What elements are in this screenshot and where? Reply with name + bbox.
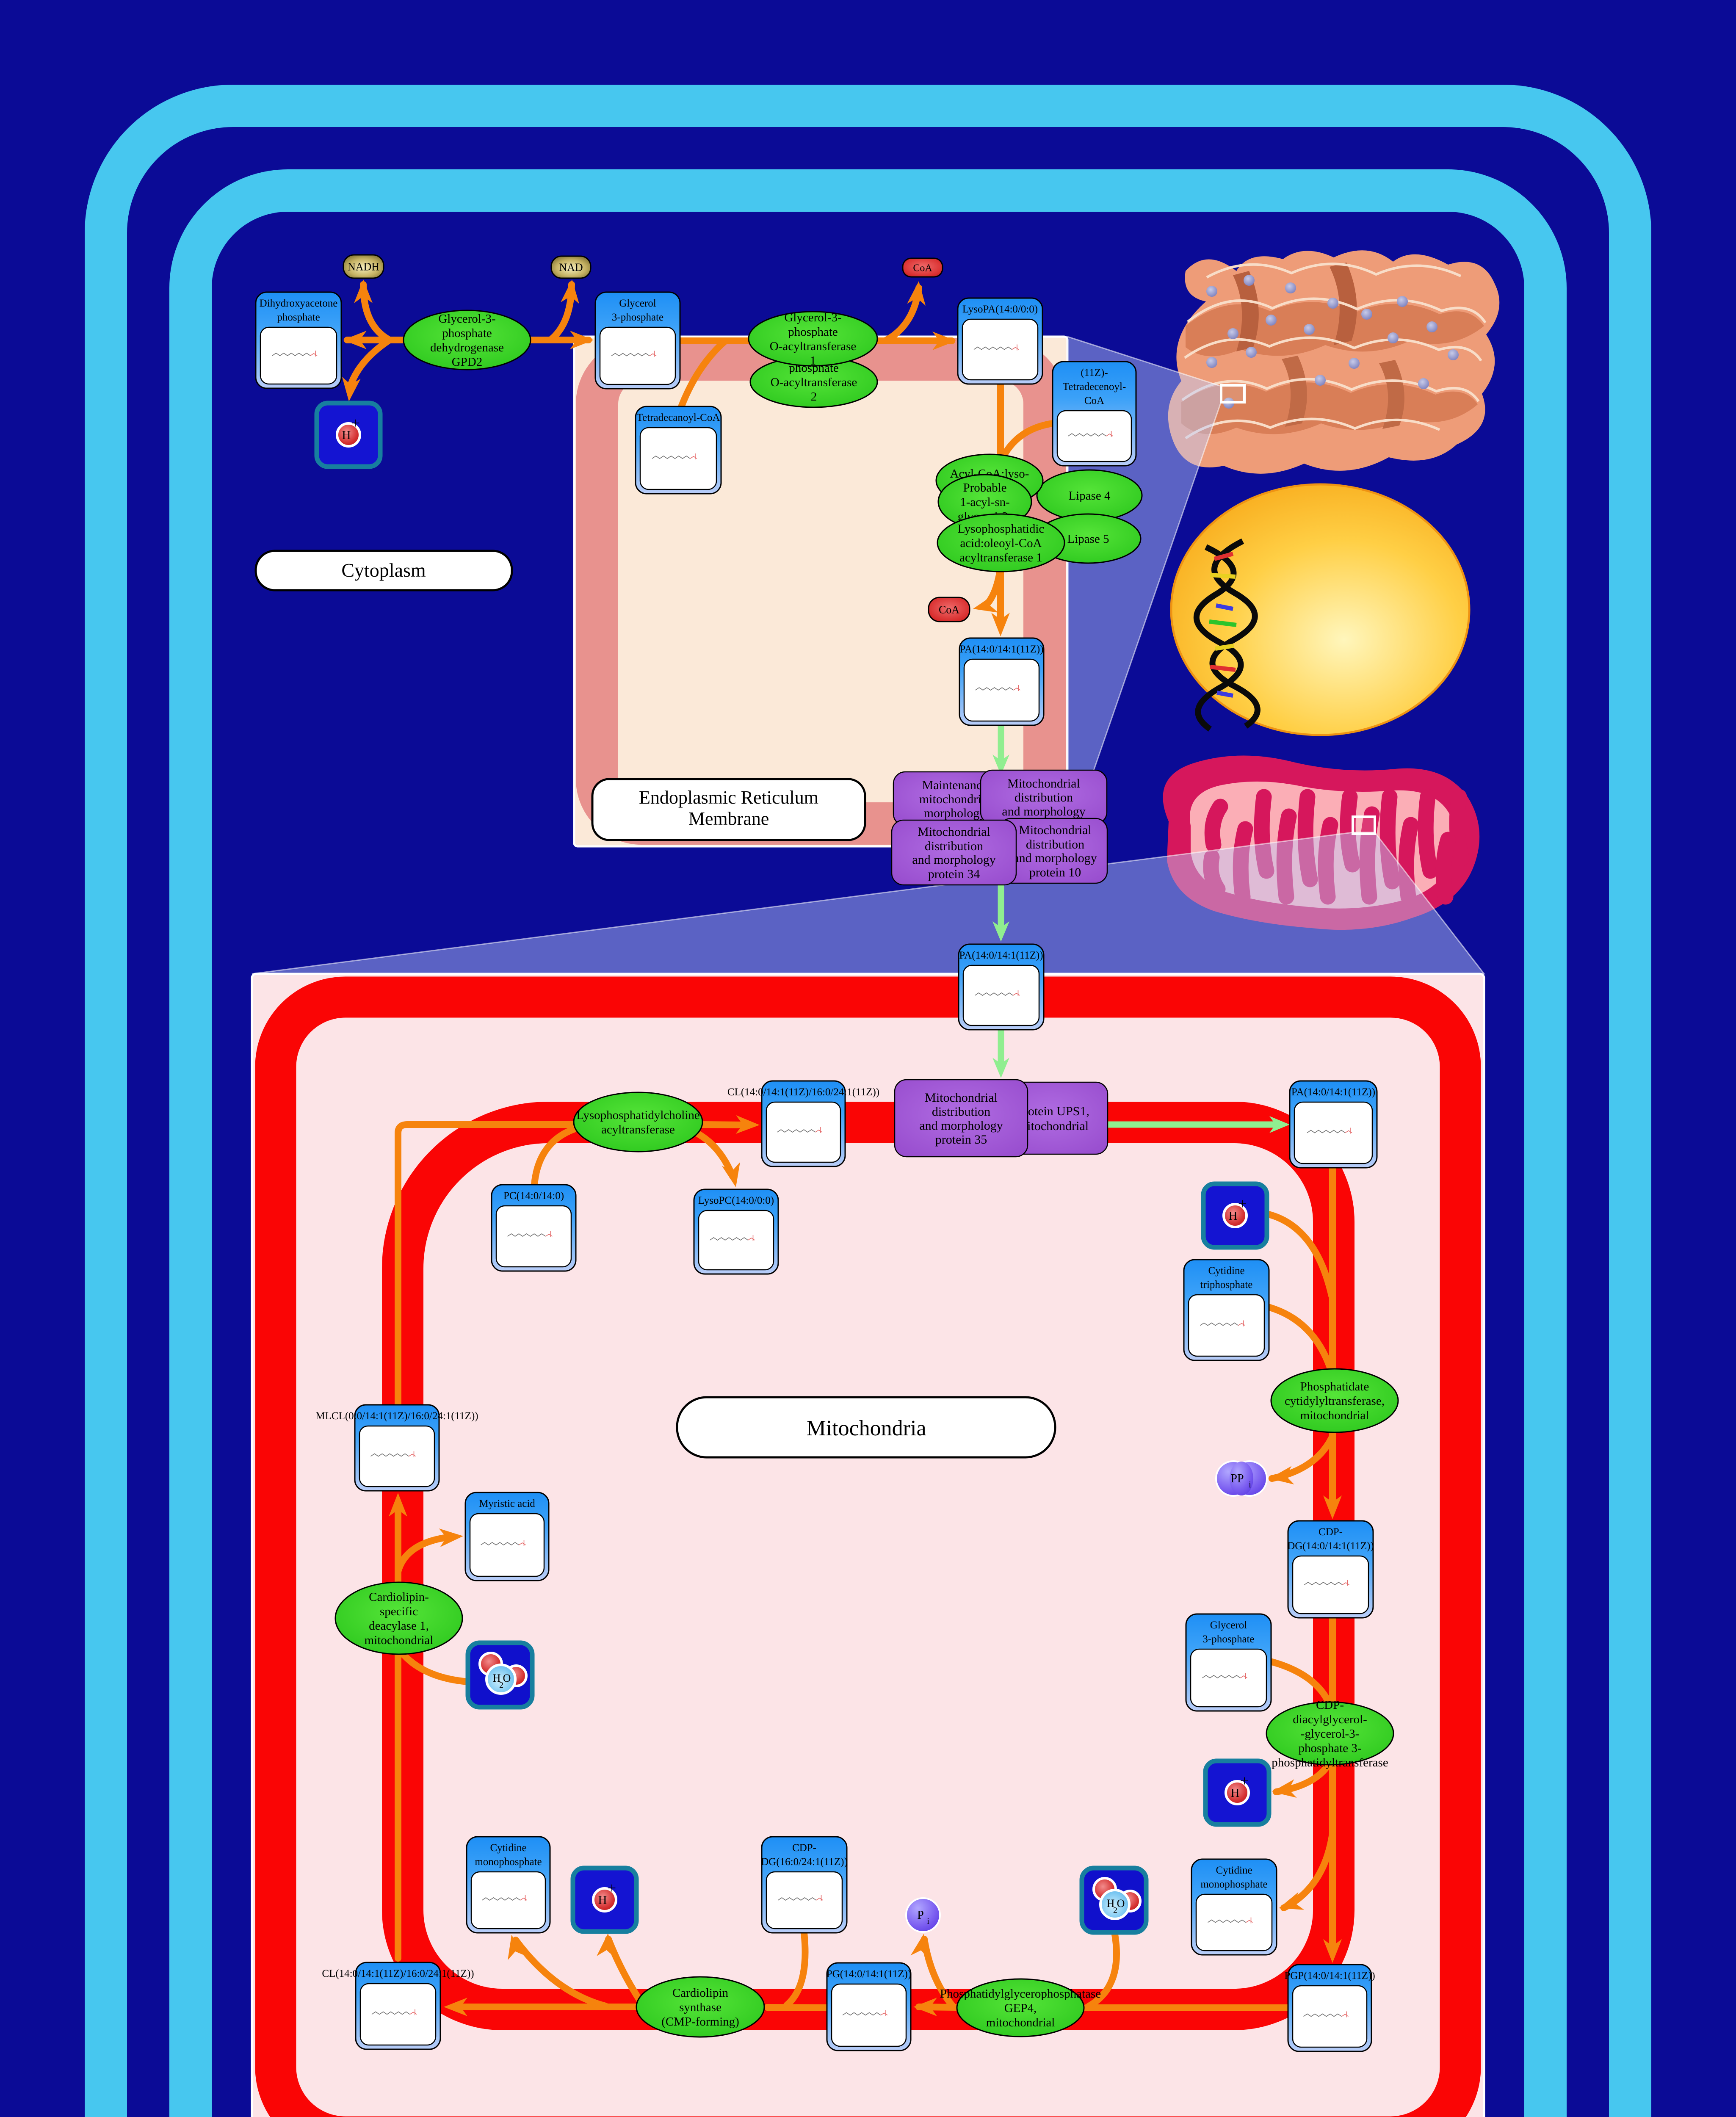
svg-text:2: 2 [811,390,817,404]
svg-text:phosphate: phosphate [277,312,320,323]
svg-text:H: H [342,428,351,442]
svg-text:and morphology: and morphology [1002,804,1085,818]
svg-text:(11Z)-: (11Z)- [1081,367,1108,379]
svg-text:PA(14:0/14:1(11Z)): PA(14:0/14:1(11Z)) [1291,1086,1375,1098]
svg-text:CL(14:0/14:1(11Z)/16:0/24:1(11: CL(14:0/14:1(11Z)/16:0/24:1(11Z)) [727,1086,879,1098]
svg-text:H: H [1231,1786,1240,1800]
svg-text:Lysophosphatidic: Lysophosphatidic [958,522,1045,536]
svg-text:DG(16:0/24:1(11Z)): DG(16:0/24:1(11Z)) [761,1856,848,1868]
svg-text:LysoPA(14:0/0:0): LysoPA(14:0/0:0) [962,304,1038,315]
svg-text:Mitochondrial: Mitochondrial [1019,823,1092,837]
svg-text:Cardiolipin: Cardiolipin [672,1986,729,2000]
svg-text:NADH: NADH [348,261,379,273]
svg-text:CDP-: CDP- [1316,1698,1344,1712]
svg-text:protein 34: protein 34 [928,867,980,881]
svg-text:phosphate 3-: phosphate 3- [1299,1741,1362,1755]
svg-text:PP: PP [1230,1472,1244,1485]
svg-text:Mitochondrial: Mitochondrial [925,1091,998,1105]
svg-text:Cytidine: Cytidine [490,1842,526,1854]
svg-text:CL(14:0/14:1(11Z)/16:0/24:1(11: CL(14:0/14:1(11Z)/16:0/24:1(11Z)) [322,1968,474,1979]
svg-text:Glycerol: Glycerol [619,298,656,309]
svg-text:triphosphate: triphosphate [1200,1279,1253,1291]
svg-text:monophosphate: monophosphate [1200,1879,1267,1890]
svg-text:H: H [1229,1209,1238,1223]
svg-text:LysoPC(14:0/0:0): LysoPC(14:0/0:0) [698,1195,774,1206]
svg-text:specific: specific [380,1605,418,1618]
svg-text:+: + [608,1879,616,1896]
svg-text:phosphate: phosphate [788,325,838,339]
svg-text:PC(14:0/14:0): PC(14:0/14:0) [503,1190,564,1202]
svg-text:mitochondrial: mitochondrial [986,2016,1055,2029]
svg-text:P: P [917,1909,924,1922]
svg-text:Tetradecanoyl-CoA: Tetradecanoyl-CoA [637,412,720,423]
svg-text:phosphate: phosphate [442,326,492,340]
svg-text:cytidylyltransferase,: cytidylyltransferase, [1285,1394,1385,1408]
svg-text:protein 35: protein 35 [935,1133,987,1147]
svg-text:H: H [598,1893,607,1907]
svg-text:PA(14:0/14:1(11Z)): PA(14:0/14:1(11Z)) [959,644,1043,655]
svg-text:distribution: distribution [1015,790,1073,804]
svg-text:Glycerol-3-: Glycerol-3- [784,311,841,324]
svg-text:Dihydroxyacetone: Dihydroxyacetone [260,298,338,309]
svg-text:morphology: morphology [924,806,986,820]
svg-text:acyltransferase 1: acyltransferase 1 [959,551,1042,564]
svg-text:distribution: distribution [1026,837,1084,851]
svg-text:Cytidine: Cytidine [1216,1865,1252,1876]
svg-text:and morphology: and morphology [912,853,995,867]
svg-text:-glycerol-3-: -glycerol-3- [1301,1727,1360,1741]
svg-text:Glycerol: Glycerol [1210,1620,1247,1631]
svg-text:protein 10: protein 10 [1029,865,1081,879]
svg-text:O-acyltransferase: O-acyltransferase [771,376,857,389]
svg-text:diacylglycerol-: diacylglycerol- [1293,1713,1367,1726]
svg-text:acyltransferase: acyltransferase [601,1123,675,1136]
svg-text:Lysophosphatidylcholine: Lysophosphatidylcholine [576,1108,700,1122]
svg-text:3-phosphate: 3-phosphate [612,312,663,323]
svg-text:i: i [927,1916,929,1926]
svg-text:Lipase 4: Lipase 4 [1068,489,1111,503]
svg-text:CoA: CoA [1084,395,1104,406]
svg-text:Phosphatidate: Phosphatidate [1300,1380,1369,1393]
svg-text:distribution: distribution [925,839,983,853]
svg-text:+: + [1238,1195,1247,1212]
svg-text:phosphatidyltransferase: phosphatidyltransferase [1272,1756,1388,1769]
svg-text:Mitochondria: Mitochondria [806,1416,926,1440]
svg-text:NAD: NAD [559,261,583,274]
svg-text:+: + [1240,1772,1249,1789]
svg-text:Cardiolipin-: Cardiolipin- [369,1590,429,1604]
svg-text:CDP-: CDP- [1319,1526,1343,1538]
svg-text:deacylase 1,: deacylase 1, [369,1619,429,1633]
svg-text:1-acyl-sn-: 1-acyl-sn- [960,495,1010,509]
svg-text:Glycerol-3-: Glycerol-3- [438,312,495,326]
svg-text:dehydrogenase: dehydrogenase [430,341,504,354]
svg-text:acid:oleoyl-CoA: acid:oleoyl-CoA [960,536,1042,550]
svg-text:Mitochondrial: Mitochondrial [918,825,990,839]
svg-text:Endoplasmic Reticulum: Endoplasmic Reticulum [639,787,818,808]
svg-text:1: 1 [810,354,816,368]
svg-text:(CMP-forming): (CMP-forming) [661,2015,739,2029]
svg-text:Maintenance: Maintenance [922,778,988,792]
svg-text:Mitochondrial: Mitochondrial [1007,777,1080,790]
svg-text:CoA: CoA [913,263,932,274]
svg-text:O: O [1117,1897,1125,1910]
svg-text:DG(14:0/14:1(11Z)): DG(14:0/14:1(11Z)) [1287,1540,1374,1552]
svg-text:PG(14:0/14:1(11Z)): PG(14:0/14:1(11Z)) [827,1968,911,1980]
svg-text:3-phosphate: 3-phosphate [1202,1633,1254,1645]
svg-text:mitochondrial: mitochondrial [919,792,990,806]
svg-text:and morphology: and morphology [919,1119,1003,1133]
svg-text:Phosphatidylglycerophosphatase: Phosphatidylglycerophosphatase [940,1987,1101,2001]
svg-text:i: i [1249,1479,1251,1490]
svg-text:Cytidine: Cytidine [1208,1265,1244,1277]
svg-text:Myristic acid: Myristic acid [479,1498,535,1509]
svg-text:distribution: distribution [932,1105,990,1119]
svg-text:O-acyltransferase: O-acyltransferase [770,340,857,353]
svg-text:Tetradecenoyl-: Tetradecenoyl- [1063,381,1126,392]
svg-text:GEP4,: GEP4, [1004,2001,1037,2015]
svg-text:Probable: Probable [963,481,1006,495]
svg-text:PGP(14:0/14:1(11Z)): PGP(14:0/14:1(11Z)) [1284,1970,1375,1982]
svg-text:monophosphate: monophosphate [475,1856,542,1868]
svg-text:MLCL(0:0/14:1(11Z)/16:0/24:1(1: MLCL(0:0/14:1(11Z)/16:0/24:1(11Z)) [315,1410,478,1422]
svg-text:CoA: CoA [939,604,959,616]
svg-text:O: O [503,1672,511,1684]
svg-text:Cytoplasm: Cytoplasm [341,559,426,581]
svg-text:Lipase 5: Lipase 5 [1067,532,1109,546]
svg-text:PA(14:0/14:1(11Z)): PA(14:0/14:1(11Z)) [959,950,1043,961]
svg-text:Membrane: Membrane [688,808,769,829]
svg-text:mitochondrial: mitochondrial [365,1633,434,1647]
svg-text:+: + [351,415,360,431]
svg-text:CDP-: CDP- [792,1842,816,1854]
svg-text:and morphology: and morphology [1013,851,1097,865]
svg-text:mitochondrial: mitochondrial [1300,1409,1369,1422]
svg-text:synthase: synthase [679,2001,721,2014]
svg-text:GPD2: GPD2 [452,355,483,369]
